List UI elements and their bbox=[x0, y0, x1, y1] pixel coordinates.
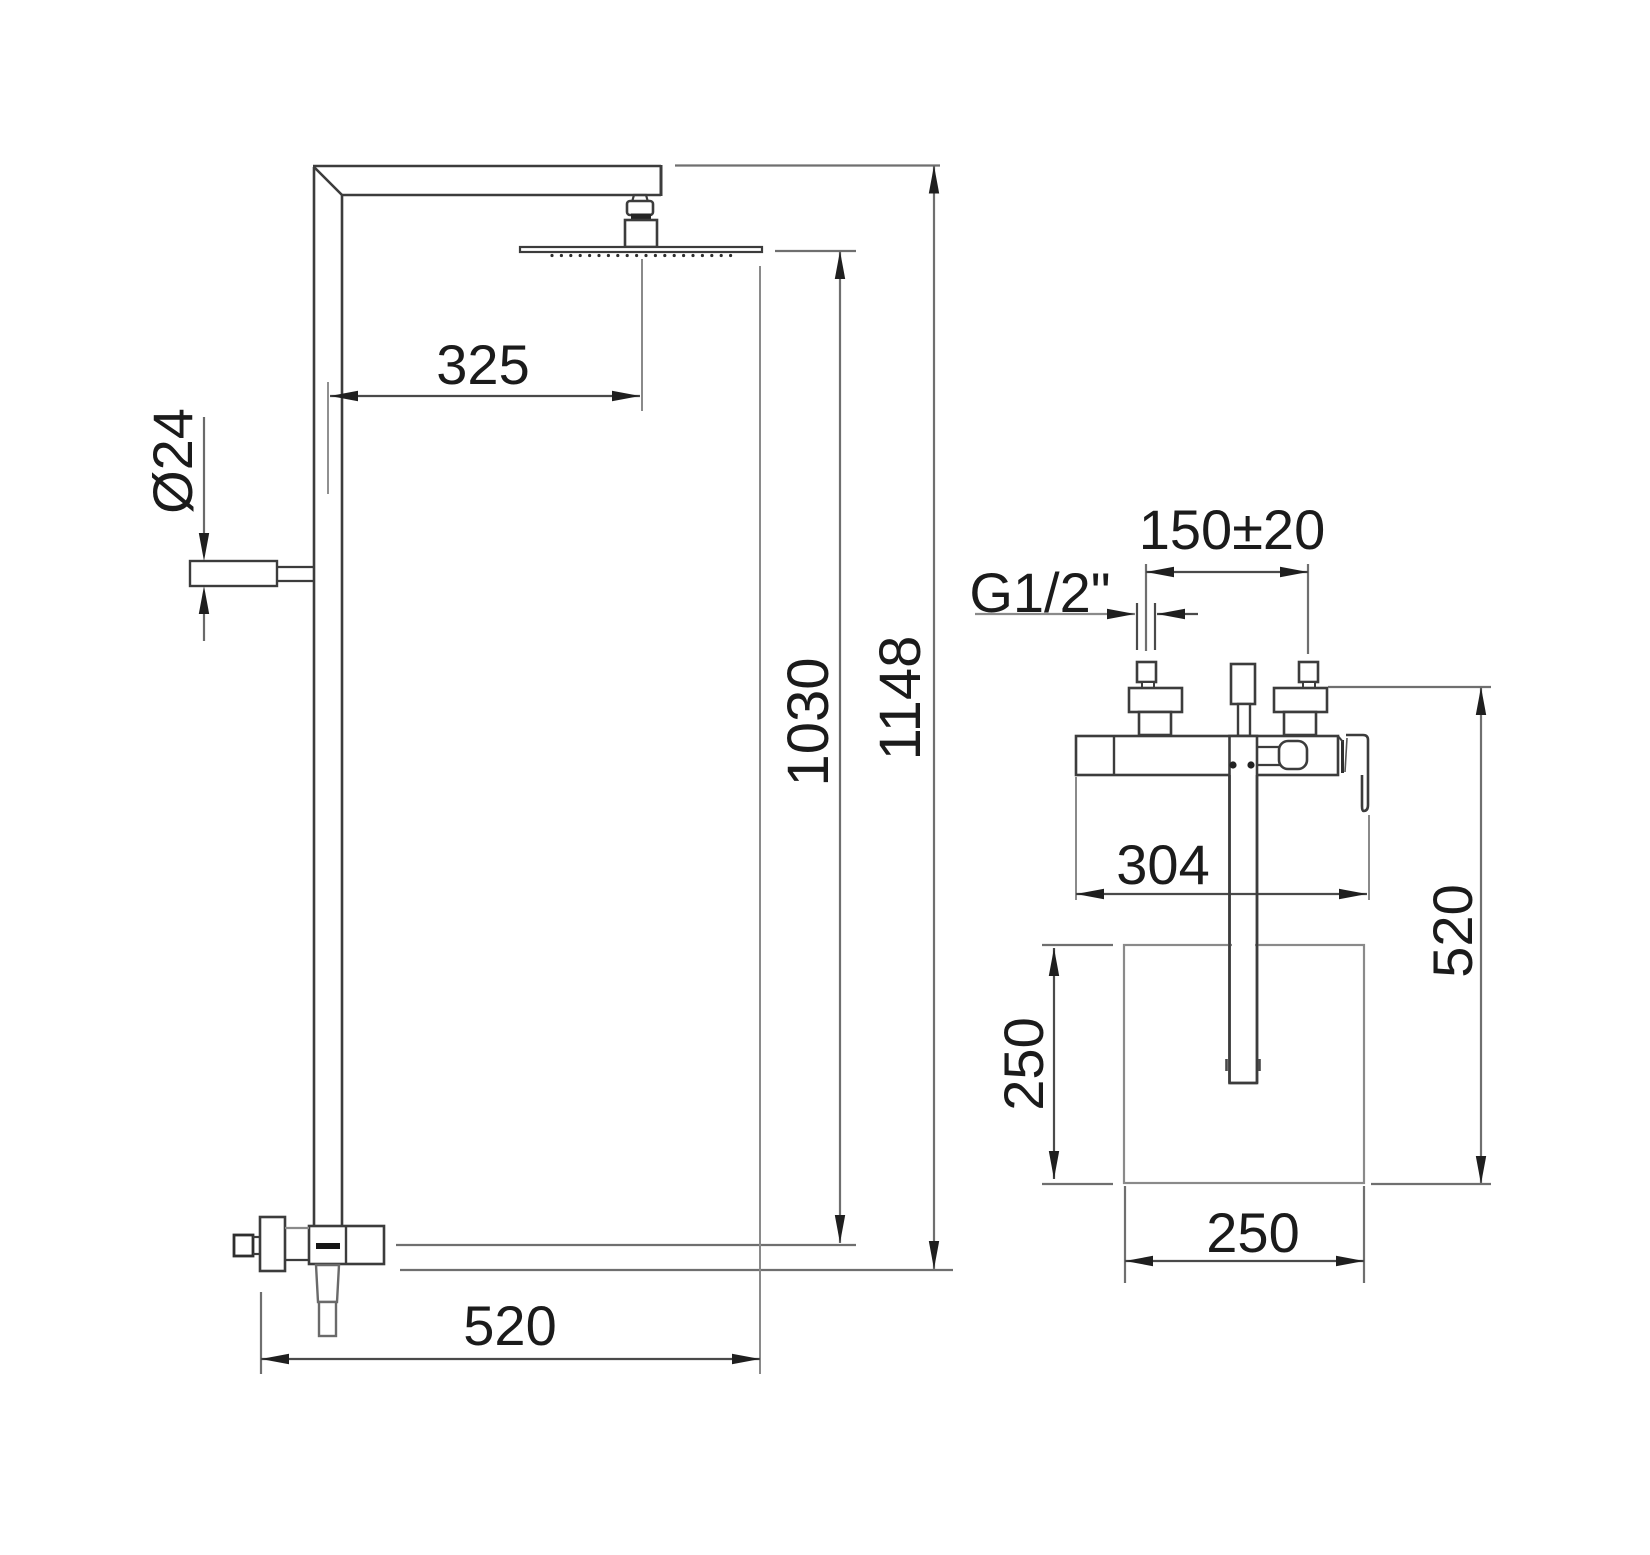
svg-text:304: 304 bbox=[1116, 833, 1209, 896]
svg-text:G1/2": G1/2" bbox=[969, 561, 1110, 624]
svg-text:520: 520 bbox=[1421, 884, 1484, 977]
svg-text:1030: 1030 bbox=[776, 657, 841, 786]
svg-text:Ø24: Ø24 bbox=[141, 408, 204, 514]
svg-text:150±20: 150±20 bbox=[1139, 498, 1325, 561]
svg-text:250: 250 bbox=[992, 1017, 1055, 1110]
svg-text:1148: 1148 bbox=[868, 636, 933, 761]
svg-text:520: 520 bbox=[463, 1294, 556, 1357]
svg-text:250: 250 bbox=[1206, 1201, 1299, 1264]
svg-text:325: 325 bbox=[436, 333, 529, 396]
